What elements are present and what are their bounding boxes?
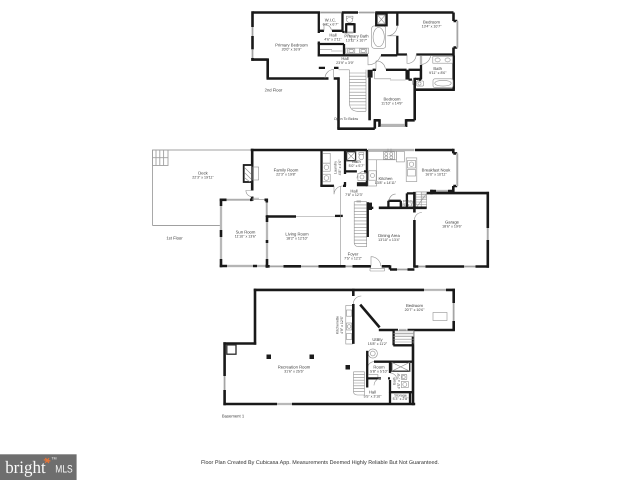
svg-text:bright: bright <box>5 457 46 477</box>
svg-text:TM: TM <box>52 457 57 461</box>
svg-text:MLS: MLS <box>55 463 72 475</box>
